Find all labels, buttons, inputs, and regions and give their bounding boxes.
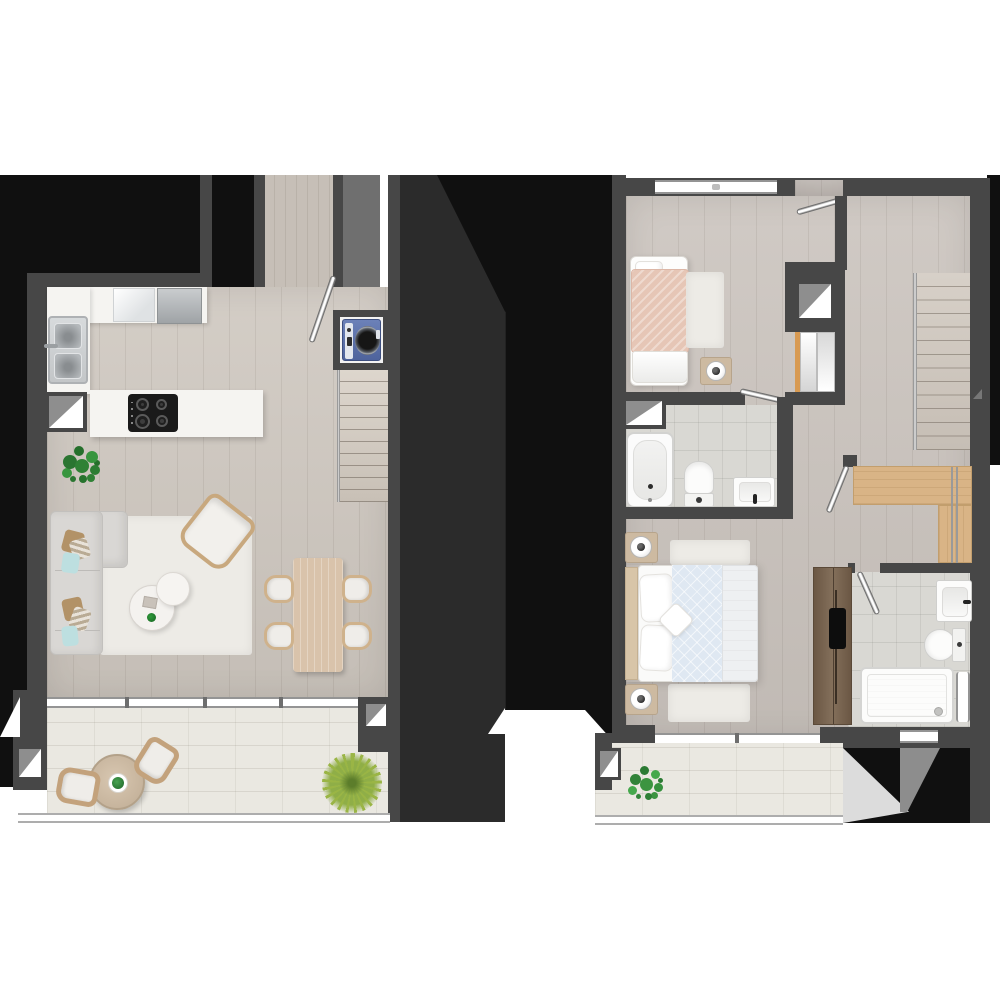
ensuite-faucet-icon (963, 600, 971, 604)
window-mullion (125, 697, 129, 708)
lamp-bulb-icon (637, 695, 645, 703)
burner-icon (135, 414, 150, 429)
dining-table (293, 558, 343, 672)
ensuite-top-wall (880, 563, 972, 573)
coffee-table-small (156, 572, 190, 606)
toilet (684, 461, 714, 507)
terrace-balustrade (18, 813, 390, 823)
shaft-hatch-icon (19, 749, 41, 777)
floor-plan-canvas (0, 0, 1000, 1000)
stairs-upper-handrail (913, 273, 917, 450)
shaft-balcony (597, 748, 621, 780)
toilet-bowl (684, 461, 714, 494)
sink-basin-bottom (54, 353, 82, 379)
lamp-bulb-icon (712, 367, 720, 375)
double-sink (48, 316, 88, 384)
shaft-bedroom-closet (795, 280, 835, 322)
shower-tray (860, 667, 954, 724)
master-bed (625, 565, 758, 682)
balcony-plant (640, 778, 653, 791)
washer-display-icon (347, 337, 352, 346)
dining-chair (264, 575, 294, 603)
bathtub (626, 432, 674, 508)
monstera-plant (75, 459, 89, 473)
left-wall-b (612, 175, 626, 740)
washbasin (733, 477, 775, 507)
shaft-hatch-icon (49, 396, 83, 428)
shaft-bathroom (622, 397, 666, 429)
lamp-bulb-icon (637, 543, 645, 551)
burner-icon (156, 415, 168, 427)
ensuite-flush-icon (957, 642, 962, 647)
stairs-lower (337, 370, 388, 502)
fridge (157, 288, 202, 324)
table-deco-plant (147, 613, 156, 622)
kitchen-cabinet-gloss (113, 288, 155, 322)
dining-chair (342, 575, 372, 603)
wardrobe-sliding-door (817, 332, 835, 392)
master-bottom-wall-left (612, 725, 655, 745)
nightstand-lamp (630, 688, 652, 710)
shaft-hatch-icon (366, 704, 386, 726)
shaft-hatch-icon (799, 284, 831, 318)
kitchen-top-wall (27, 273, 207, 287)
burner-icon (156, 399, 167, 410)
entry-door-gap (795, 180, 843, 196)
table-deco-box (142, 596, 158, 609)
right-wall-b (970, 178, 990, 745)
tv-cabinet (813, 567, 852, 725)
bath-bottom-wall (612, 507, 793, 519)
bed-blanket (631, 269, 689, 353)
balcony-balustrade (595, 815, 843, 825)
basin-faucet-icon (753, 494, 757, 504)
washer-detail (376, 330, 380, 339)
bedside-lamp (706, 361, 726, 381)
window-mullion (203, 697, 207, 708)
stairs-upper (917, 273, 970, 450)
bath-right-wall (777, 397, 793, 515)
wardrobe-sliding-door (800, 332, 817, 392)
bedroom-right-wall (835, 196, 847, 270)
cooktop (128, 394, 178, 432)
terrace-bowl-plant (112, 777, 124, 789)
washing-machine (342, 319, 381, 361)
ensuite-basin (936, 580, 972, 622)
bathtub-drain-icon (648, 484, 653, 489)
tv-screen-icon (829, 608, 846, 649)
sink-basin-top (54, 323, 82, 349)
left-wall-a (27, 273, 47, 700)
walkin-wardrobe-top (853, 466, 972, 505)
nightstand-lamp (630, 536, 652, 558)
bathtub-basin (633, 440, 667, 500)
bathtub-faucet-icon (648, 498, 652, 502)
wardrobe-right-wall (835, 330, 845, 392)
shaft-terrace-right (362, 700, 390, 730)
shower-drain-icon (934, 707, 943, 716)
washer-control-panel (345, 323, 353, 359)
shaft-kitchen (45, 392, 87, 432)
ensuite-toilet (924, 628, 970, 662)
shaft-hatch-icon (600, 751, 618, 777)
balcony-right-wall (970, 730, 990, 823)
void-top-left (27, 175, 207, 275)
washer-dial-icon (347, 328, 351, 332)
master-blanket (722, 565, 758, 682)
palm-plant (322, 753, 382, 813)
sofa-pillow-teal (61, 625, 79, 647)
single-bed (630, 256, 688, 386)
stairs-handrail (337, 370, 340, 502)
window-mullion (279, 697, 283, 708)
toilet-flush-icon (696, 497, 702, 503)
master-rug-bottom (668, 684, 750, 722)
balcony-floor (595, 743, 843, 817)
shaft-terrace-left (15, 745, 45, 781)
walkin-track-line (951, 467, 953, 563)
dining-chair (264, 622, 294, 650)
burner-icon (136, 398, 149, 411)
master-rug-top (670, 540, 750, 565)
dining-chair (342, 622, 372, 650)
ensuite-window (956, 672, 970, 722)
sink-faucet-icon (44, 344, 58, 348)
bed-sheet-fold (632, 351, 688, 383)
walkin-track-line (956, 467, 958, 563)
window-latch-icon (712, 184, 720, 190)
headboard (625, 567, 638, 680)
shaft-hatch-icon (626, 401, 662, 425)
bath-top-wall-stub (785, 392, 845, 405)
bedroom-rug (686, 272, 724, 348)
bath-window (900, 730, 938, 743)
walkin-wardrobe-side (938, 505, 972, 563)
cooktop-controls (131, 402, 133, 424)
sofa-pillow-teal (61, 552, 81, 574)
